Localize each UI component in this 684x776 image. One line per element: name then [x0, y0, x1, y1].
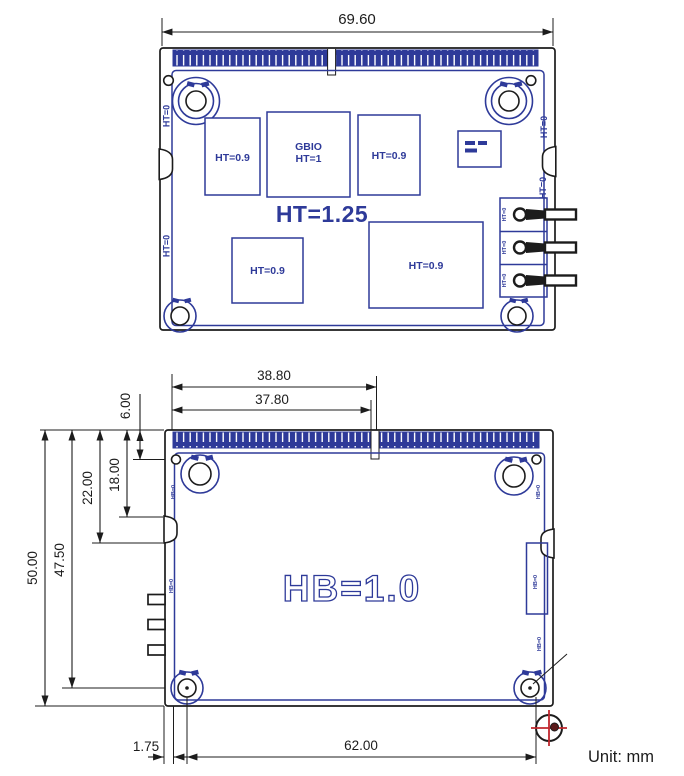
svg-text:50.00: 50.00 — [25, 551, 40, 585]
board-dimension-drawing: 69.60 — [0, 0, 684, 776]
component-box-3: HT=0.9 — [358, 115, 420, 195]
svg-text:HT=0: HT=0 — [502, 274, 508, 288]
svg-text:37.80: 37.80 — [255, 392, 289, 407]
small-chip-box — [458, 131, 501, 167]
svg-text:22.00: 22.00 — [80, 471, 95, 505]
edge-height-label-right-2: HT=0 — [538, 177, 548, 199]
component-height-label: HT=0.9 — [250, 265, 285, 277]
dim-hole-span: 62.00 — [187, 738, 536, 757]
edge-label-left-top: HB=0 — [171, 485, 177, 499]
bottom-view-drawing: 38.80 37.80 6.00 50.00 47.50 — [25, 368, 654, 766]
component-box-1: HT=0.9 — [205, 118, 260, 195]
left-edge-notch — [159, 149, 172, 180]
component-height-label: HT=0.9 — [409, 260, 444, 272]
svg-text:HT=0: HT=0 — [502, 241, 508, 255]
component-height-label: HT=0.9 — [372, 150, 407, 162]
svg-text:47.50: 47.50 — [52, 543, 67, 577]
edge-label-left-mid: HB=0 — [169, 579, 175, 593]
edge-label-right-top: HB=0 — [536, 485, 542, 499]
mechanical-drawing-page: 69.60 — [0, 0, 684, 776]
svg-text:38.80: 38.80 — [257, 368, 291, 383]
svg-text:62.00: 62.00 — [344, 738, 378, 753]
top-view-drawing: 69.60 — [159, 11, 576, 332]
index-hole-left — [164, 76, 174, 86]
component-height-label: HT=1 — [296, 153, 322, 165]
svg-text:18.00: 18.00 — [107, 458, 122, 492]
edge-height-label-left-1: HT=0 — [162, 105, 172, 127]
dim-notch-top: 18.00 — [107, 430, 163, 517]
index-hole-left — [172, 455, 181, 464]
index-hole-right — [526, 76, 536, 86]
component-name-label: GBIO — [295, 141, 322, 153]
component-box-5: HT=0.9 — [369, 222, 483, 308]
component-box-4: HT=0.9 — [232, 238, 303, 303]
edge-height-label-right-1: HT=0 — [539, 116, 549, 138]
edge-height-label-left-2: HT=0 — [162, 235, 172, 257]
index-hole-right — [532, 455, 541, 464]
dim-label-69-60: 69.60 — [338, 11, 376, 28]
top-zone-height-label: HT=1.25 — [276, 201, 368, 227]
edge-label-right-low: HB=0 — [537, 637, 543, 651]
edge-label-right-mid: HB=0 — [533, 575, 539, 589]
bottom-extension-lines — [164, 697, 536, 764]
dim-hole-offset: 6.00 — [118, 393, 171, 460]
svg-text:6.00: 6.00 — [118, 393, 133, 419]
bottom-zone-height-label: HB=1.0 — [283, 568, 421, 609]
component-height-label: HT=0.9 — [215, 152, 250, 164]
dim-top-width: 69.60 — [162, 11, 553, 46]
left-edge-notch — [164, 516, 177, 543]
right-edge-notch — [543, 147, 556, 177]
component-box-2: GBIO HT=1 — [267, 112, 350, 197]
svg-text:HT=0: HT=0 — [502, 208, 508, 222]
unit-note: Unit: mm — [588, 748, 654, 766]
svg-text:1.75: 1.75 — [133, 739, 159, 754]
left-edge-connector-tabs — [148, 595, 165, 656]
dim-edge-to-fingers: 1.75 — [133, 739, 187, 757]
